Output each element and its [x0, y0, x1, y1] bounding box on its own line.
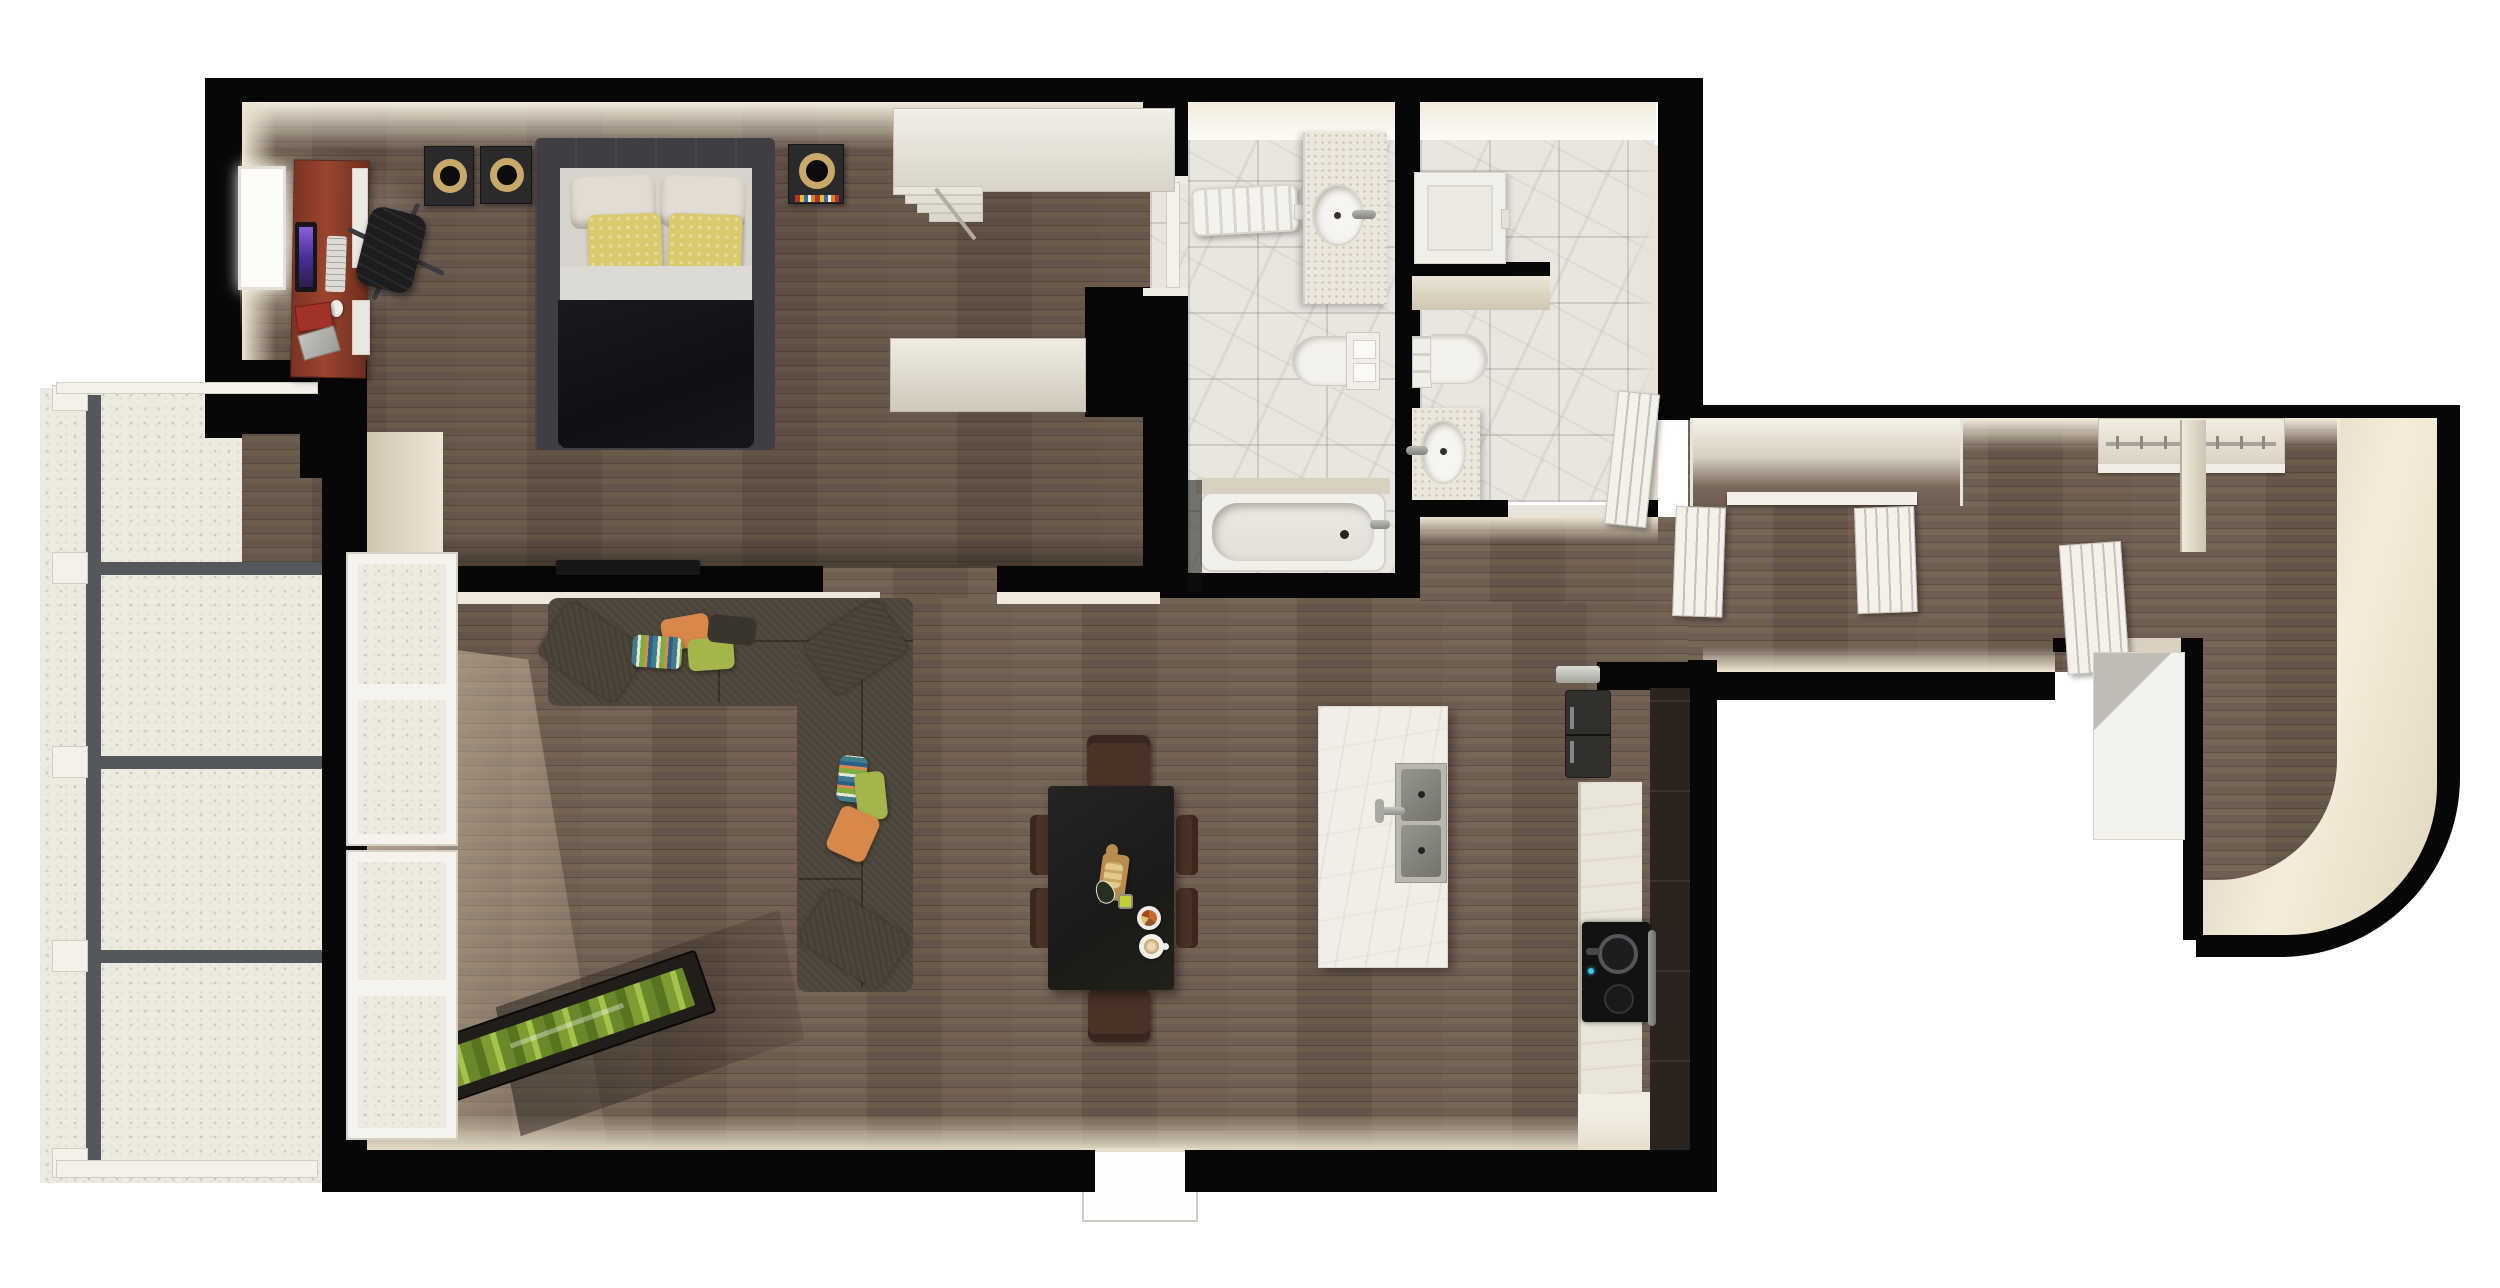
- wall-wing-top: [1703, 405, 2460, 418]
- speaker-cone-icon: [433, 159, 467, 193]
- balcony-rail-h1: [100, 562, 322, 575]
- wall-nook-right: [2183, 648, 2203, 940]
- hanger-3: [2164, 436, 2167, 449]
- tub-shadow-left: [1188, 480, 1202, 592]
- desk-shelf-white-2: [352, 300, 370, 355]
- divider-trim-2: [997, 592, 1160, 604]
- books-row: [795, 195, 839, 202]
- entry-floor: [2196, 417, 2337, 880]
- wall-east-upper: [1658, 78, 1703, 420]
- wall-kitchen-top: [1597, 662, 1703, 690]
- wall-closet-hall: [1085, 287, 1152, 417]
- bedroom-window: [238, 166, 286, 290]
- bathtub: [1200, 492, 1386, 572]
- bath1-toilet-tank: [1346, 332, 1380, 390]
- fridge-handle-1: [1570, 707, 1574, 729]
- dining-chair-bottom: [1088, 988, 1150, 1042]
- bath1-faucet: [1352, 210, 1376, 219]
- hanger-6: [2262, 436, 2265, 449]
- wall-wing-bottom: [1703, 672, 2055, 700]
- bed-duvet: [558, 300, 754, 448]
- balcony-post-2: [52, 552, 88, 584]
- bath2-toilet-tank: [1412, 336, 1432, 388]
- speaker-cone-icon: [490, 158, 524, 192]
- balcony-edge-bottom: [56, 1160, 318, 1178]
- hallway-top-face2: [2285, 418, 2340, 448]
- pot-handle: [1586, 948, 1600, 955]
- hanger-5: [2240, 436, 2243, 449]
- entry-cabinet: [2093, 652, 2185, 840]
- hanger-2: [2140, 436, 2143, 449]
- sink-drain-1: [1418, 791, 1425, 798]
- hall-closet-shelf: [1727, 492, 1917, 505]
- shower-tray: [1414, 172, 1506, 264]
- keyboard: [325, 236, 347, 293]
- bath1-drain: [1334, 212, 1341, 219]
- pillow-stripe-1: [631, 634, 683, 669]
- bath2-shelf: [1412, 276, 1550, 310]
- burner: [1604, 984, 1634, 1014]
- balcony-rail-vertical: [86, 395, 101, 1168]
- west-wall-face-lower: [367, 432, 443, 572]
- wall-top: [205, 78, 1703, 102]
- dresser-unit: [890, 338, 1086, 412]
- green-dish: [1118, 894, 1133, 909]
- cup-handle: [1162, 943, 1169, 950]
- wall-bath-west-lower: [1143, 290, 1188, 598]
- bed-pillow-yellow-2: [667, 213, 743, 274]
- bath2-door-threshold: [1508, 505, 1608, 517]
- speaker-left-1: [424, 146, 474, 206]
- plate-food: [1141, 910, 1157, 926]
- fridge: [1565, 690, 1611, 778]
- lamp-icon: [799, 153, 835, 189]
- living-window-2: [346, 850, 458, 1140]
- pillow-dark-1: [707, 614, 758, 647]
- food-plate: [1137, 906, 1161, 930]
- bathtub-drain: [1340, 530, 1349, 539]
- radiator: [1191, 183, 1299, 236]
- dining-chair-right-2: [1176, 888, 1198, 948]
- wall-bath-divider: [1395, 97, 1420, 573]
- bath1-door-jamb-bottom: [1143, 288, 1188, 296]
- balcony-rail-h2: [100, 756, 322, 769]
- fridge-gap: [1566, 734, 1610, 736]
- hanger-1: [2116, 436, 2119, 449]
- sink-faucet-base: [1375, 799, 1384, 823]
- monitor-screen: [299, 227, 313, 287]
- balcony-rail-h3: [100, 950, 322, 963]
- wall-shower-stub: [1410, 262, 1550, 276]
- bedroom-south-shadow: [360, 536, 1150, 568]
- tank-panel-2: [1353, 363, 1376, 382]
- window1-pane-bottom: [358, 700, 446, 834]
- wardrobe-pillar: [2180, 420, 2206, 552]
- dining-chair-top: [1087, 735, 1150, 789]
- wall-bottom-a: [322, 1150, 1085, 1192]
- wall-tv: [556, 560, 700, 575]
- bath2-faucet: [1406, 446, 1428, 455]
- speaker-left-2: [480, 146, 532, 204]
- oven-handle: [1648, 930, 1656, 1026]
- shower-handle: [1501, 209, 1510, 229]
- hallway-top-face: [1963, 418, 2103, 450]
- bathtub-basin: [1212, 503, 1374, 561]
- balcony-post-3: [52, 746, 88, 778]
- wardrobe-unit: [893, 108, 1175, 192]
- window1-pane-top: [358, 564, 446, 684]
- cooktop: [1582, 922, 1650, 1022]
- tank-panel-1: [1353, 340, 1376, 359]
- hall-closet-door-1: [1672, 506, 1726, 618]
- bath1-open-door: [1166, 182, 1180, 288]
- window2-pane-bottom: [358, 996, 446, 1128]
- coffee-surface: [1144, 939, 1159, 954]
- bottom-bump-jamb-left: [1085, 1150, 1095, 1192]
- wall-bottom-b: [1195, 1150, 1717, 1192]
- wall-east-lower: [1688, 660, 1717, 1192]
- bottom-window-bump: [1082, 1148, 1198, 1222]
- balcony-post-4: [52, 940, 88, 972]
- kitchen-shelf-silver: [1556, 666, 1600, 683]
- floor-plan: [0, 0, 2500, 1288]
- hanger-4: [2216, 436, 2219, 449]
- monitor: [295, 222, 317, 292]
- island: [1318, 706, 1448, 968]
- cooktop-led: [1588, 968, 1594, 974]
- fridge-handle-2: [1570, 741, 1574, 763]
- kitchen-tall-cabinets: [1650, 688, 1690, 1150]
- bath2-toilet-bowl: [1430, 334, 1488, 384]
- balcony-edge-top: [56, 382, 318, 394]
- sink-drain-2: [1418, 847, 1425, 854]
- coffee-cup: [1139, 934, 1164, 959]
- living-window-1: [346, 552, 458, 846]
- dining-chair-right-1: [1176, 815, 1198, 875]
- bath2-drain: [1440, 448, 1447, 455]
- bed-pillow-yellow-1: [587, 213, 663, 274]
- shower-tray-inner: [1427, 185, 1493, 251]
- pot: [1598, 934, 1638, 974]
- window2-pane-top: [358, 862, 446, 980]
- hallway-bottom-face: [1703, 646, 2055, 672]
- bathtub-faucet: [1370, 520, 1390, 529]
- hall-closet-door-2: [1854, 506, 1918, 614]
- wall-bath2-south-a: [1420, 500, 1508, 517]
- sofa-seam-4: [799, 878, 861, 880]
- nightstand-right: [788, 144, 844, 204]
- bath1-toilet-bowl: [1292, 336, 1348, 386]
- bottom-bump-jamb-right: [1185, 1150, 1195, 1192]
